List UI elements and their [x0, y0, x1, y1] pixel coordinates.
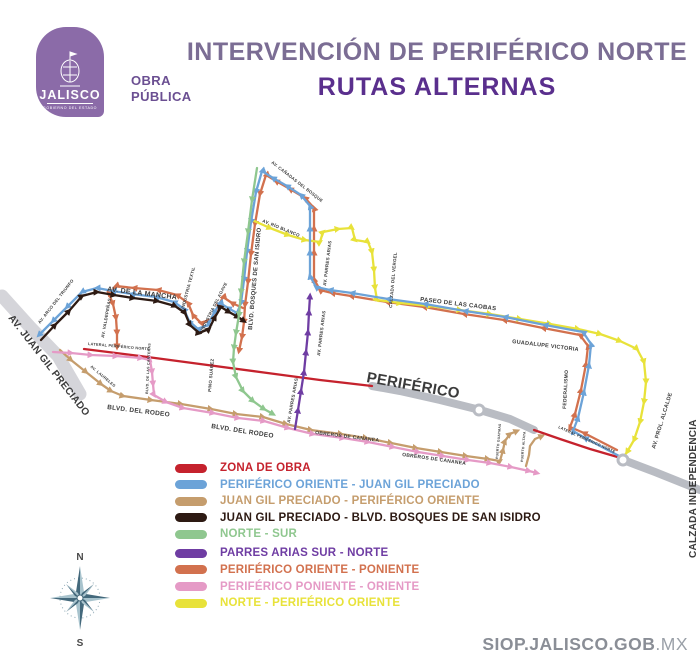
- legend-item-oriente-poniente: PERIFÉRICO ORIENTE - PONIENTE: [175, 564, 541, 576]
- legend-label: PERIFÉRICO ORIENTE - JUAN GIL PRECIADO: [220, 479, 480, 491]
- legend-label: NORTE - PERIFÉRICO ORIENTE: [220, 597, 400, 609]
- legend-label: PARRES ARIAS SUR - NORTE: [220, 547, 388, 559]
- legend-label: JUAN GIL PRECIADO - BLVD. BOSQUES DE SAN…: [220, 512, 541, 524]
- legend-item-norte-oriente: NORTE - PERIFÉRICO ORIENTE: [175, 597, 541, 609]
- compass-north-label: N: [76, 552, 83, 563]
- street-label-blvd-del-rodeo-2: BLVD. DEL RODEO: [211, 423, 274, 440]
- legend-item-oriente-juan-gil: PERIFÉRICO ORIENTE - JUAN GIL PRECIADO: [175, 479, 541, 491]
- street-label-calzada-independencia: CALZADA INDEPENDENCIA: [688, 419, 699, 558]
- website-url-light: .MX: [655, 634, 688, 654]
- street-label-valdepenas: AV. VALDEPEÑAS: [100, 298, 112, 338]
- compass-star: [50, 566, 110, 630]
- junction-node: [618, 455, 628, 465]
- legend-label: PERIFÉRICO ORIENTE - PONIENTE: [220, 564, 419, 576]
- legend: ZONA DE OBRA PERIFÉRICO ORIENTE - JUAN G…: [175, 462, 541, 614]
- legend-item-juan-gil-bosques: JUAN GIL PRECIADO - BLVD. BOSQUES DE SAN…: [175, 512, 541, 524]
- legend-label: JUAN GIL PRECIADO - PERIFÉRICO ORIENTE: [220, 495, 480, 507]
- street-label-lateral-periferico-east: LATERAL PERIFÉRICO NORTE: [558, 424, 617, 454]
- route-oriente-juan-gil: [39, 171, 621, 457]
- legend-label: ZONA DE OBRA: [220, 462, 311, 474]
- street-label-loop-right: PUERTO ALTATA: [520, 431, 527, 462]
- legend-swatch: [175, 480, 207, 489]
- street-label-blvd-del-rodeo-1: BLVD. DEL RODEO: [107, 404, 170, 419]
- legend-item-zona-de-obra: ZONA DE OBRA: [175, 462, 541, 474]
- legend-item-norte-sur: NORTE - SUR: [175, 528, 541, 540]
- compass-rose: N S: [50, 552, 110, 649]
- street-label-guadalupe-victoria: GUADALUPE VICTORIA: [512, 339, 579, 353]
- legend-item-parres-arias: PARRES ARIAS SUR - NORTE: [175, 547, 541, 559]
- legend-label: PERIFÉRICO PONIENTE - ORIENTE: [220, 581, 419, 593]
- street-label-pino-suarez: PINO SUÁREZ: [206, 358, 215, 392]
- route-parres-arias: [295, 296, 310, 429]
- street-label-obreros-cananea-1: OBREROS DE CANANEA: [315, 430, 380, 444]
- legend-swatch: [175, 582, 207, 591]
- street-label-federalismo: FEDERALISMO: [562, 370, 570, 409]
- legend-swatch: [175, 513, 207, 522]
- legend-label: NORTE - SUR: [220, 528, 297, 540]
- legend-swatch: [175, 565, 207, 574]
- website-url: SIOP.JALISCO.GOB.MX: [482, 634, 688, 655]
- compass-south-label: S: [77, 638, 84, 649]
- street-label-parres-arias-north: AV. PARRES ARIAS: [322, 240, 333, 286]
- legend-swatch: [175, 530, 207, 539]
- legend-swatch: [175, 497, 207, 506]
- legend-item-poniente-oriente: PERIFÉRICO PONIENTE - ORIENTE: [175, 581, 541, 593]
- legend-item-juan-gil-oriente: JUAN GIL PRECIADO - PERIFÉRICO ORIENTE: [175, 495, 541, 507]
- legend-swatch: [175, 599, 207, 608]
- legend-swatch: [175, 464, 207, 473]
- legend-swatch: [175, 549, 207, 558]
- roundabout-node: [474, 405, 484, 415]
- street-label-bosques-san-isidro: BLVD. BOSQUES DE SAN ISIDRO: [248, 227, 263, 330]
- route-oriente-poniente: [239, 175, 617, 450]
- street-label-parres-arias-mid: AV. PARRES ARIAS: [316, 310, 327, 356]
- website-url-bold: SIOP.JALISCO.GOB: [482, 634, 655, 654]
- street-label-prol-alcalde: AV. PROL. ALCALDE: [651, 392, 674, 450]
- route-zona-de-obra-west: [84, 349, 372, 386]
- infographic-canvas: JALISCO GOBIERNO DEL ESTADO OBRA PÚBLICA…: [0, 0, 700, 663]
